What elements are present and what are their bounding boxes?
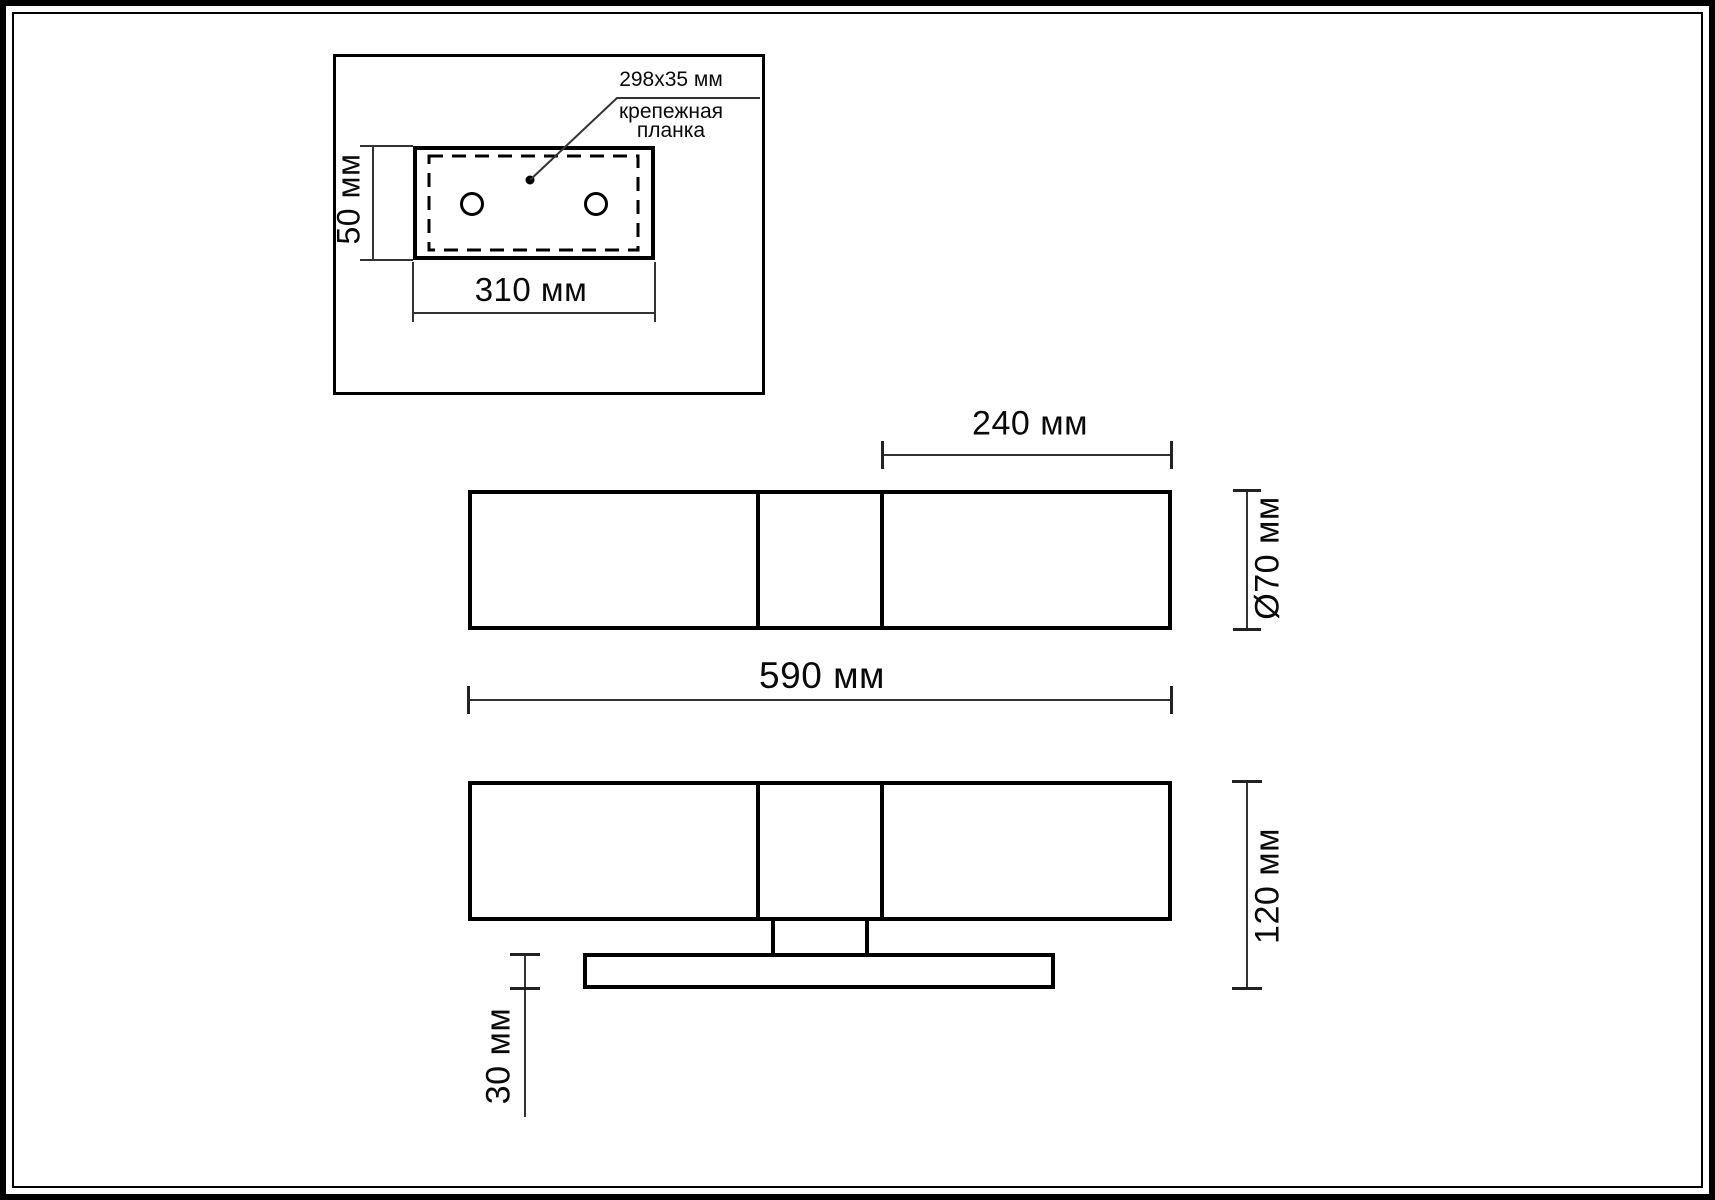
dim-120-label: 120 мм (1249, 828, 1288, 944)
side-view-body (468, 781, 1172, 921)
dim-240-tick-left (881, 441, 884, 469)
dim-240-tick-right (1170, 441, 1173, 469)
side-view-divider-left (756, 781, 760, 921)
dim-50-extension-bottom (360, 259, 413, 261)
dim-240-line (882, 454, 1172, 456)
dim-590-tick-right (1170, 686, 1173, 714)
lamp-stem-right-edge (865, 919, 869, 955)
dim-590-label: 590 мм (759, 655, 885, 697)
front-view-divider-right (880, 490, 884, 630)
front-view-body (468, 490, 1172, 630)
dim-590-line (468, 699, 1172, 701)
mounting-hole-right (586, 194, 607, 215)
dim-120-tick-bottom (1232, 987, 1262, 990)
dim-590-tick-left (467, 686, 470, 714)
dim-50-extension-top (360, 145, 413, 147)
dim-310-label: 310 мм (475, 271, 588, 309)
dim-30-label: 30 мм (480, 1008, 519, 1105)
front-view-divider-left (756, 490, 760, 630)
dim-70-label: Ø70 мм (1249, 496, 1288, 619)
annotation-size-label: 298x35 мм (619, 69, 723, 91)
dim-30-tick-top (510, 953, 540, 956)
dim-50-line (372, 145, 374, 261)
dim-30-line (524, 953, 526, 1117)
dim-30-tick-bottom (510, 987, 540, 990)
annotation-name-label-line2: планка (637, 120, 705, 142)
dim-120-tick-top (1232, 780, 1262, 783)
dim-70-tick-top (1233, 489, 1261, 492)
dim-70-tick-bottom (1233, 628, 1261, 631)
dim-240-label: 240 мм (972, 405, 1088, 444)
mounting-hole-left (462, 194, 483, 215)
lamp-stem-left-edge (771, 919, 775, 955)
dim-50-label: 50 мм (331, 154, 368, 245)
dim-310-line (412, 312, 656, 314)
base-plate (583, 953, 1055, 989)
technical-drawing-canvas: 298x35 мм крепежная планка 50 мм 310 мм … (0, 0, 1715, 1200)
side-view-divider-right (880, 781, 884, 921)
